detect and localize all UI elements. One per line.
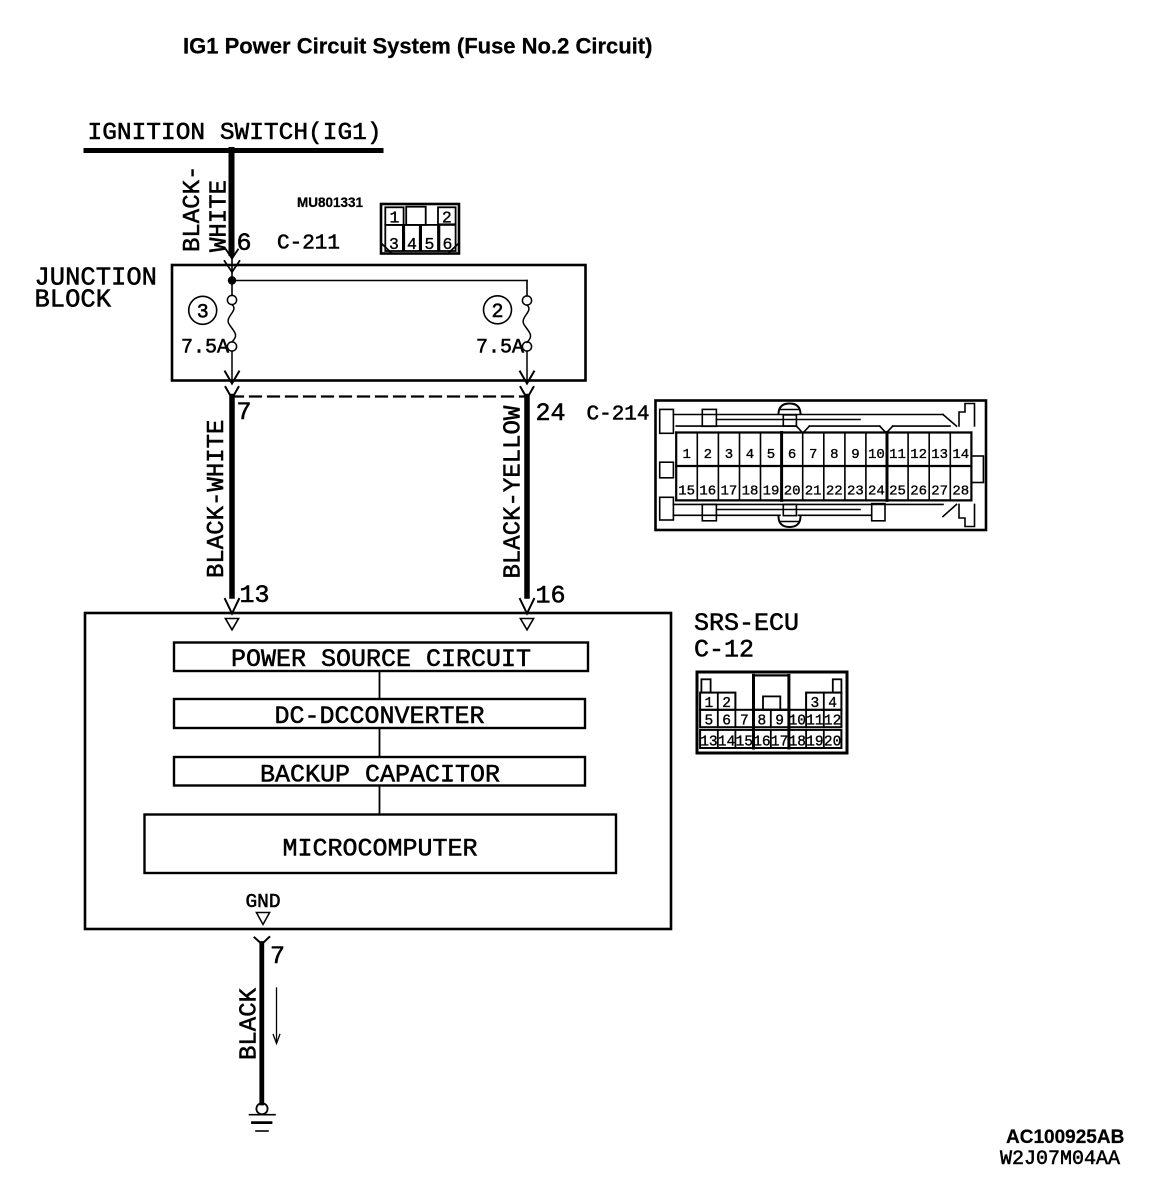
svg-text:23: 23	[847, 484, 864, 500]
svg-text:25: 25	[889, 484, 906, 500]
svg-text:BLOCK: BLOCK	[35, 286, 112, 315]
svg-text:9: 9	[775, 714, 784, 730]
svg-text:7.5A: 7.5A	[476, 337, 524, 360]
svg-text:3: 3	[389, 235, 399, 254]
svg-text:7: 7	[237, 398, 252, 427]
svg-text:1: 1	[682, 447, 690, 463]
svg-text:18: 18	[789, 735, 806, 751]
svg-text:2: 2	[442, 209, 452, 228]
svg-text:6: 6	[722, 714, 731, 730]
svg-text:16: 16	[536, 582, 566, 611]
svg-text:14: 14	[718, 735, 735, 751]
svg-text:3: 3	[811, 696, 820, 712]
svg-text:19: 19	[763, 484, 780, 500]
svg-text:7: 7	[809, 447, 817, 463]
svg-text:3: 3	[725, 447, 733, 463]
svg-text:8: 8	[758, 714, 767, 730]
svg-text:13: 13	[700, 735, 717, 751]
svg-text:6: 6	[443, 235, 453, 254]
svg-text:17: 17	[720, 484, 737, 500]
svg-text:20: 20	[824, 735, 841, 751]
svg-text:1: 1	[390, 209, 400, 228]
svg-text:C-211: C-211	[277, 233, 340, 256]
svg-text:21: 21	[805, 484, 822, 500]
svg-text:BLACK-YELLOW: BLACK-YELLOW	[501, 405, 528, 578]
svg-text:5: 5	[767, 447, 775, 463]
svg-text:27: 27	[931, 484, 948, 500]
svg-text:17: 17	[771, 735, 788, 751]
svg-text:26: 26	[910, 484, 927, 500]
svg-text:MICROCOMPUTER: MICROCOMPUTER	[282, 835, 477, 864]
svg-text:WHITE: WHITE	[207, 180, 234, 252]
svg-text:4: 4	[746, 447, 754, 463]
svg-text:C-214: C-214	[587, 404, 650, 427]
svg-text:2: 2	[722, 696, 731, 712]
svg-text:24: 24	[536, 399, 566, 428]
svg-text:IGNITION SWITCH(IG1): IGNITION SWITCH(IG1)	[88, 120, 382, 147]
svg-text:SRS-ECU: SRS-ECU	[694, 609, 799, 638]
svg-text:W2J07M04AA: W2J07M04AA	[1000, 1148, 1120, 1171]
svg-text:BLACK: BLACK	[237, 987, 264, 1060]
svg-text:BLACK-: BLACK-	[180, 166, 207, 252]
svg-text:20: 20	[784, 484, 801, 500]
svg-text:9: 9	[851, 447, 859, 463]
svg-text:6: 6	[788, 447, 796, 463]
svg-text:28: 28	[952, 484, 969, 500]
svg-text:22: 22	[826, 484, 843, 500]
svg-text:12: 12	[910, 447, 927, 463]
svg-text:AC100925AB: AC100925AB	[1006, 1127, 1124, 1148]
svg-text:10: 10	[868, 447, 885, 463]
svg-text:16: 16	[699, 484, 716, 500]
svg-text:6: 6	[237, 229, 252, 258]
svg-text:15: 15	[736, 735, 753, 751]
svg-text:2: 2	[491, 301, 503, 324]
svg-text:16: 16	[753, 735, 770, 751]
svg-text:7.5A: 7.5A	[181, 337, 229, 360]
svg-text:10: 10	[789, 714, 806, 730]
svg-text:7: 7	[270, 942, 285, 971]
svg-text:IG1 Power Circuit System (Fuse: IG1 Power Circuit System (Fuse No.2 Circ…	[183, 34, 652, 59]
svg-text:1: 1	[705, 696, 714, 712]
svg-text:13: 13	[931, 447, 948, 463]
svg-text:DC-DCCONVERTER: DC-DCCONVERTER	[274, 702, 484, 731]
svg-text:18: 18	[742, 484, 759, 500]
svg-text:24: 24	[868, 484, 885, 500]
svg-text:GND: GND	[245, 891, 280, 913]
svg-text:5: 5	[705, 714, 714, 730]
svg-text:14: 14	[952, 447, 969, 463]
svg-text:12: 12	[824, 714, 841, 730]
svg-text:2: 2	[704, 447, 712, 463]
svg-text:19: 19	[806, 735, 823, 751]
svg-text:4: 4	[407, 235, 417, 254]
svg-text:11: 11	[889, 447, 906, 463]
svg-text:13: 13	[240, 581, 270, 610]
svg-text:8: 8	[830, 447, 838, 463]
svg-text:7: 7	[740, 714, 749, 730]
svg-text:4: 4	[828, 696, 837, 712]
svg-text:15: 15	[678, 484, 695, 500]
svg-text:C-12: C-12	[694, 636, 754, 665]
svg-text:3: 3	[197, 301, 209, 324]
svg-text:11: 11	[806, 714, 823, 730]
svg-text:5: 5	[425, 235, 435, 254]
svg-text:MU801331: MU801331	[297, 195, 364, 210]
svg-text:POWER SOURCE CIRCUIT: POWER SOURCE CIRCUIT	[231, 645, 531, 674]
svg-text:BLACK-WHITE: BLACK-WHITE	[204, 420, 231, 578]
